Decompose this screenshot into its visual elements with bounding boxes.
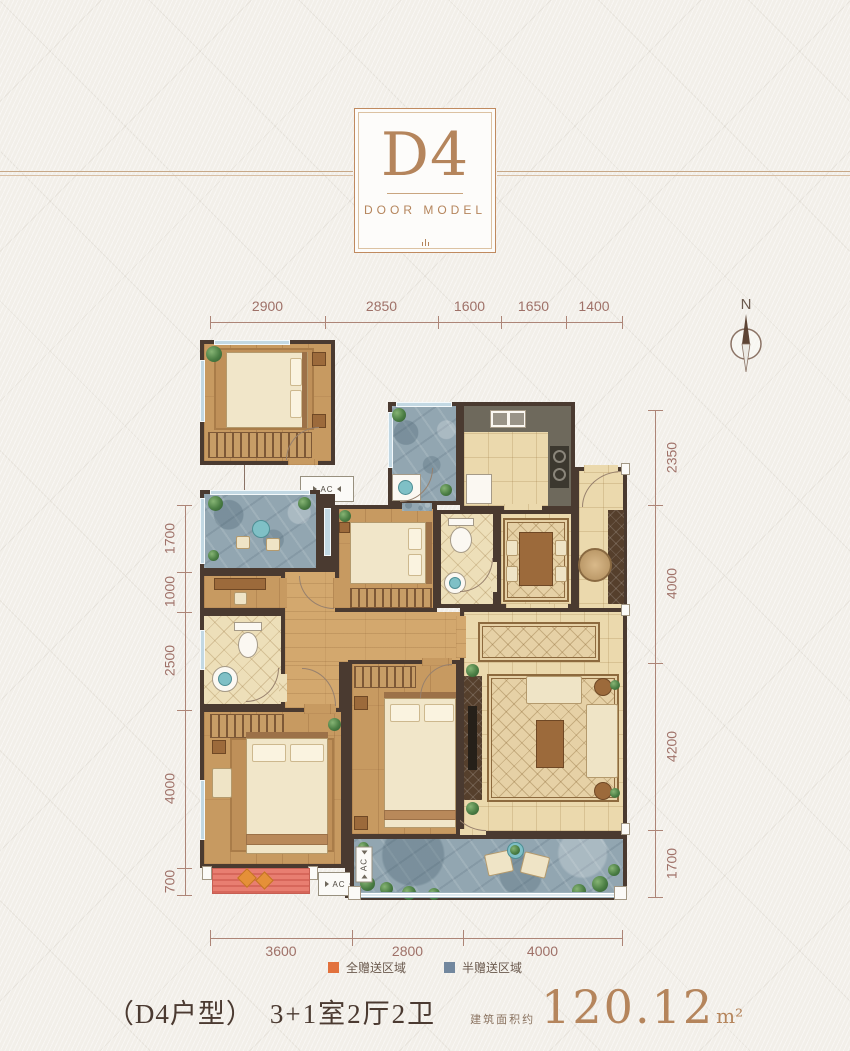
area-value: 120.12	[541, 980, 714, 1034]
patio-chair	[266, 538, 280, 551]
toilet-tank	[234, 622, 262, 631]
pillar	[621, 604, 630, 616]
arrow-left-icon	[361, 851, 367, 855]
burner	[553, 468, 566, 481]
dining-chair	[555, 566, 567, 582]
dim-line-right	[655, 410, 656, 897]
ac-unit: AC	[356, 847, 373, 883]
window	[396, 402, 452, 407]
window	[200, 360, 205, 422]
dim-tick	[622, 316, 623, 329]
dim-tick	[648, 897, 663, 898]
nightstand	[354, 696, 368, 710]
half-gift-swatch	[444, 962, 455, 973]
pillow	[290, 744, 324, 762]
ac-label: AC	[320, 485, 333, 494]
coffee-table	[536, 720, 564, 768]
ac-label: AC	[332, 880, 345, 889]
window	[200, 630, 205, 670]
plant-icon	[208, 496, 223, 511]
pillar	[348, 886, 361, 900]
runner-rug	[478, 622, 600, 662]
wardrobe	[350, 588, 432, 608]
dim-tick	[648, 505, 663, 506]
dim-bottom-2: 2800	[352, 944, 463, 959]
pillar	[614, 886, 627, 900]
dim-left-4: 4000	[163, 759, 178, 819]
area-unit: m²	[716, 1004, 743, 1028]
dim-tick	[210, 316, 211, 329]
plant-icon	[466, 664, 479, 677]
north-label: N	[731, 296, 761, 313]
arrow-left-icon	[337, 486, 341, 492]
plant-icon	[440, 484, 452, 496]
header-rule-right	[497, 171, 850, 176]
toilet	[238, 632, 258, 658]
sink-bowl	[218, 672, 232, 686]
plant-icon	[610, 680, 620, 690]
plant-icon	[208, 550, 219, 561]
dim-tick	[177, 505, 192, 506]
plant-icon	[328, 718, 341, 731]
armchair	[212, 768, 232, 798]
badge-divider	[387, 193, 463, 194]
layout-description: 3+1室2厅2卫	[270, 992, 436, 1031]
dim-tick	[438, 316, 439, 329]
wall	[339, 662, 348, 708]
toilet	[450, 527, 472, 553]
plant-icon	[392, 408, 406, 422]
plant-icon	[610, 788, 620, 798]
window	[388, 412, 393, 468]
corridor	[285, 612, 460, 662]
legend-label: 半赠送区域	[462, 959, 522, 976]
pillar	[621, 463, 630, 475]
arrow-right-icon	[361, 874, 367, 878]
plant-icon	[592, 876, 608, 892]
desk-chair	[234, 592, 247, 605]
sofa	[586, 704, 618, 778]
dim-tick	[177, 710, 192, 711]
burner	[553, 450, 566, 463]
patio-table	[252, 520, 270, 538]
dim-top-2: 2850	[325, 299, 438, 314]
compass-icon	[726, 312, 766, 376]
arrow-right-icon	[325, 881, 329, 887]
legend-item-full-gift: 全赠送区域	[328, 959, 406, 976]
dim-tick	[566, 316, 567, 329]
pillow	[290, 358, 302, 386]
window	[200, 498, 205, 564]
full-gift-swatch	[328, 962, 339, 973]
side-table	[594, 678, 612, 696]
railing	[354, 892, 623, 898]
dim-right-2: 4000	[665, 554, 680, 614]
dim-top-1: 2900	[210, 299, 325, 314]
floor-plan-page: D4 DOOR MODEL N 2900 2850 1600 1650 1400…	[0, 0, 850, 1051]
dim-bottom-1: 3600	[210, 944, 352, 959]
dim-bottom-3: 4000	[463, 944, 622, 959]
toilet-tank	[448, 518, 474, 526]
desk	[214, 578, 266, 590]
dim-right-3: 4200	[665, 717, 680, 777]
footer-summary: （D4户型） 3+1室2厅2卫 建筑面积约 120.12 m²	[0, 980, 850, 1034]
door-opening	[279, 674, 287, 702]
pillow	[408, 554, 422, 576]
dim-top-4: 1650	[501, 299, 566, 314]
fridge	[466, 474, 492, 504]
open-passage	[456, 616, 466, 658]
pillar	[202, 866, 212, 880]
side-table	[212, 740, 226, 754]
ac-label: AC	[360, 858, 369, 871]
window	[214, 340, 290, 345]
dim-tick	[622, 930, 623, 946]
badge-subtitle: DOOR MODEL	[355, 203, 495, 217]
dim-tick	[648, 830, 663, 831]
sofa	[526, 676, 582, 704]
plant-icon	[339, 510, 351, 522]
dim-line-bottom	[210, 938, 622, 939]
wardrobe	[354, 666, 416, 688]
dim-tick	[177, 612, 192, 613]
window	[324, 508, 331, 556]
dim-right-4: 1700	[665, 834, 680, 894]
tv	[468, 706, 477, 770]
dim-tick	[177, 895, 192, 896]
nightstand	[339, 522, 350, 533]
legend-item-half-gift: 半赠送区域	[444, 959, 522, 976]
area-prefix: 建筑面积约	[470, 1011, 535, 1027]
unit-name: （D4户型）	[107, 992, 254, 1031]
unit-badge: D4 DOOR MODEL	[354, 108, 496, 253]
patio-chair	[236, 536, 250, 549]
plant-icon	[608, 864, 620, 876]
door-opening	[402, 503, 432, 511]
dim-left-2: 1000	[163, 562, 178, 622]
pillow	[408, 528, 422, 550]
dim-left-5: 700	[163, 852, 178, 912]
dim-tick	[177, 572, 192, 573]
dim-tick	[177, 868, 192, 869]
dim-left-1: 1700	[163, 509, 178, 569]
pillow	[252, 744, 286, 762]
legend: 全赠送区域 半赠送区域	[0, 959, 850, 976]
dim-tick	[648, 663, 663, 664]
bed-runner	[246, 834, 328, 845]
plant-icon	[298, 497, 311, 510]
window	[210, 490, 310, 495]
plant-icon	[510, 845, 520, 855]
pillar	[621, 823, 630, 835]
nightstand	[354, 816, 368, 830]
ruler-marks-icon	[355, 239, 495, 246]
dim-tick	[648, 410, 663, 411]
pillow	[290, 390, 302, 418]
dim-left-3: 2500	[163, 631, 178, 691]
floor-plan: AC	[200, 340, 632, 905]
dining-chair	[555, 540, 567, 556]
plant-icon	[206, 346, 222, 362]
headboard	[426, 522, 432, 584]
door-opening	[333, 578, 340, 608]
nightstand	[312, 414, 326, 428]
legend-label: 全赠送区域	[346, 959, 406, 976]
pillow	[424, 704, 454, 722]
dim-line-top	[210, 322, 622, 323]
dining-chair	[506, 540, 518, 556]
header-rule-left	[0, 171, 353, 176]
dim-tick	[501, 316, 502, 329]
door-opening	[279, 578, 287, 608]
sink-bowl	[510, 413, 524, 425]
dim-top-3: 1600	[438, 299, 501, 314]
bed-runner	[384, 810, 456, 820]
headboard	[302, 352, 307, 428]
window	[200, 780, 205, 840]
mosaic-rug	[578, 548, 612, 582]
dim-tick	[325, 316, 326, 329]
dim-top-5: 1400	[566, 299, 622, 314]
sink-bowl	[493, 413, 507, 425]
pillow	[390, 704, 420, 722]
dim-line-left	[185, 505, 186, 895]
unit-code: D4	[355, 123, 495, 187]
dining-chair	[506, 566, 518, 582]
dining-table	[519, 532, 553, 586]
nightstand	[312, 352, 326, 366]
dim-right-1: 2350	[665, 428, 680, 488]
